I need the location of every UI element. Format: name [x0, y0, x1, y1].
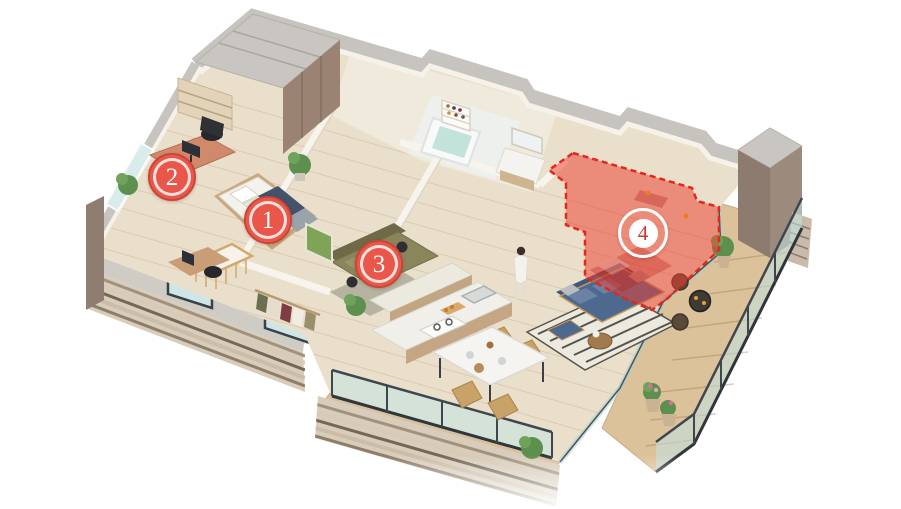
marker-2-label: 2 [166, 165, 179, 190]
floorplan-stage: 1 2 3 4 [0, 0, 901, 509]
floorplan-illustration [0, 0, 901, 509]
marker-3-label: 3 [373, 252, 386, 277]
marker-4-active[interactable]: 4 [618, 208, 668, 258]
bottom-fade [0, 455, 901, 509]
marker-1-label: 1 [262, 208, 275, 233]
marker-3[interactable]: 3 [355, 240, 403, 288]
marker-2[interactable]: 2 [148, 153, 196, 201]
marker-1[interactable]: 1 [244, 196, 292, 244]
marker-4-label: 4 [629, 219, 658, 248]
